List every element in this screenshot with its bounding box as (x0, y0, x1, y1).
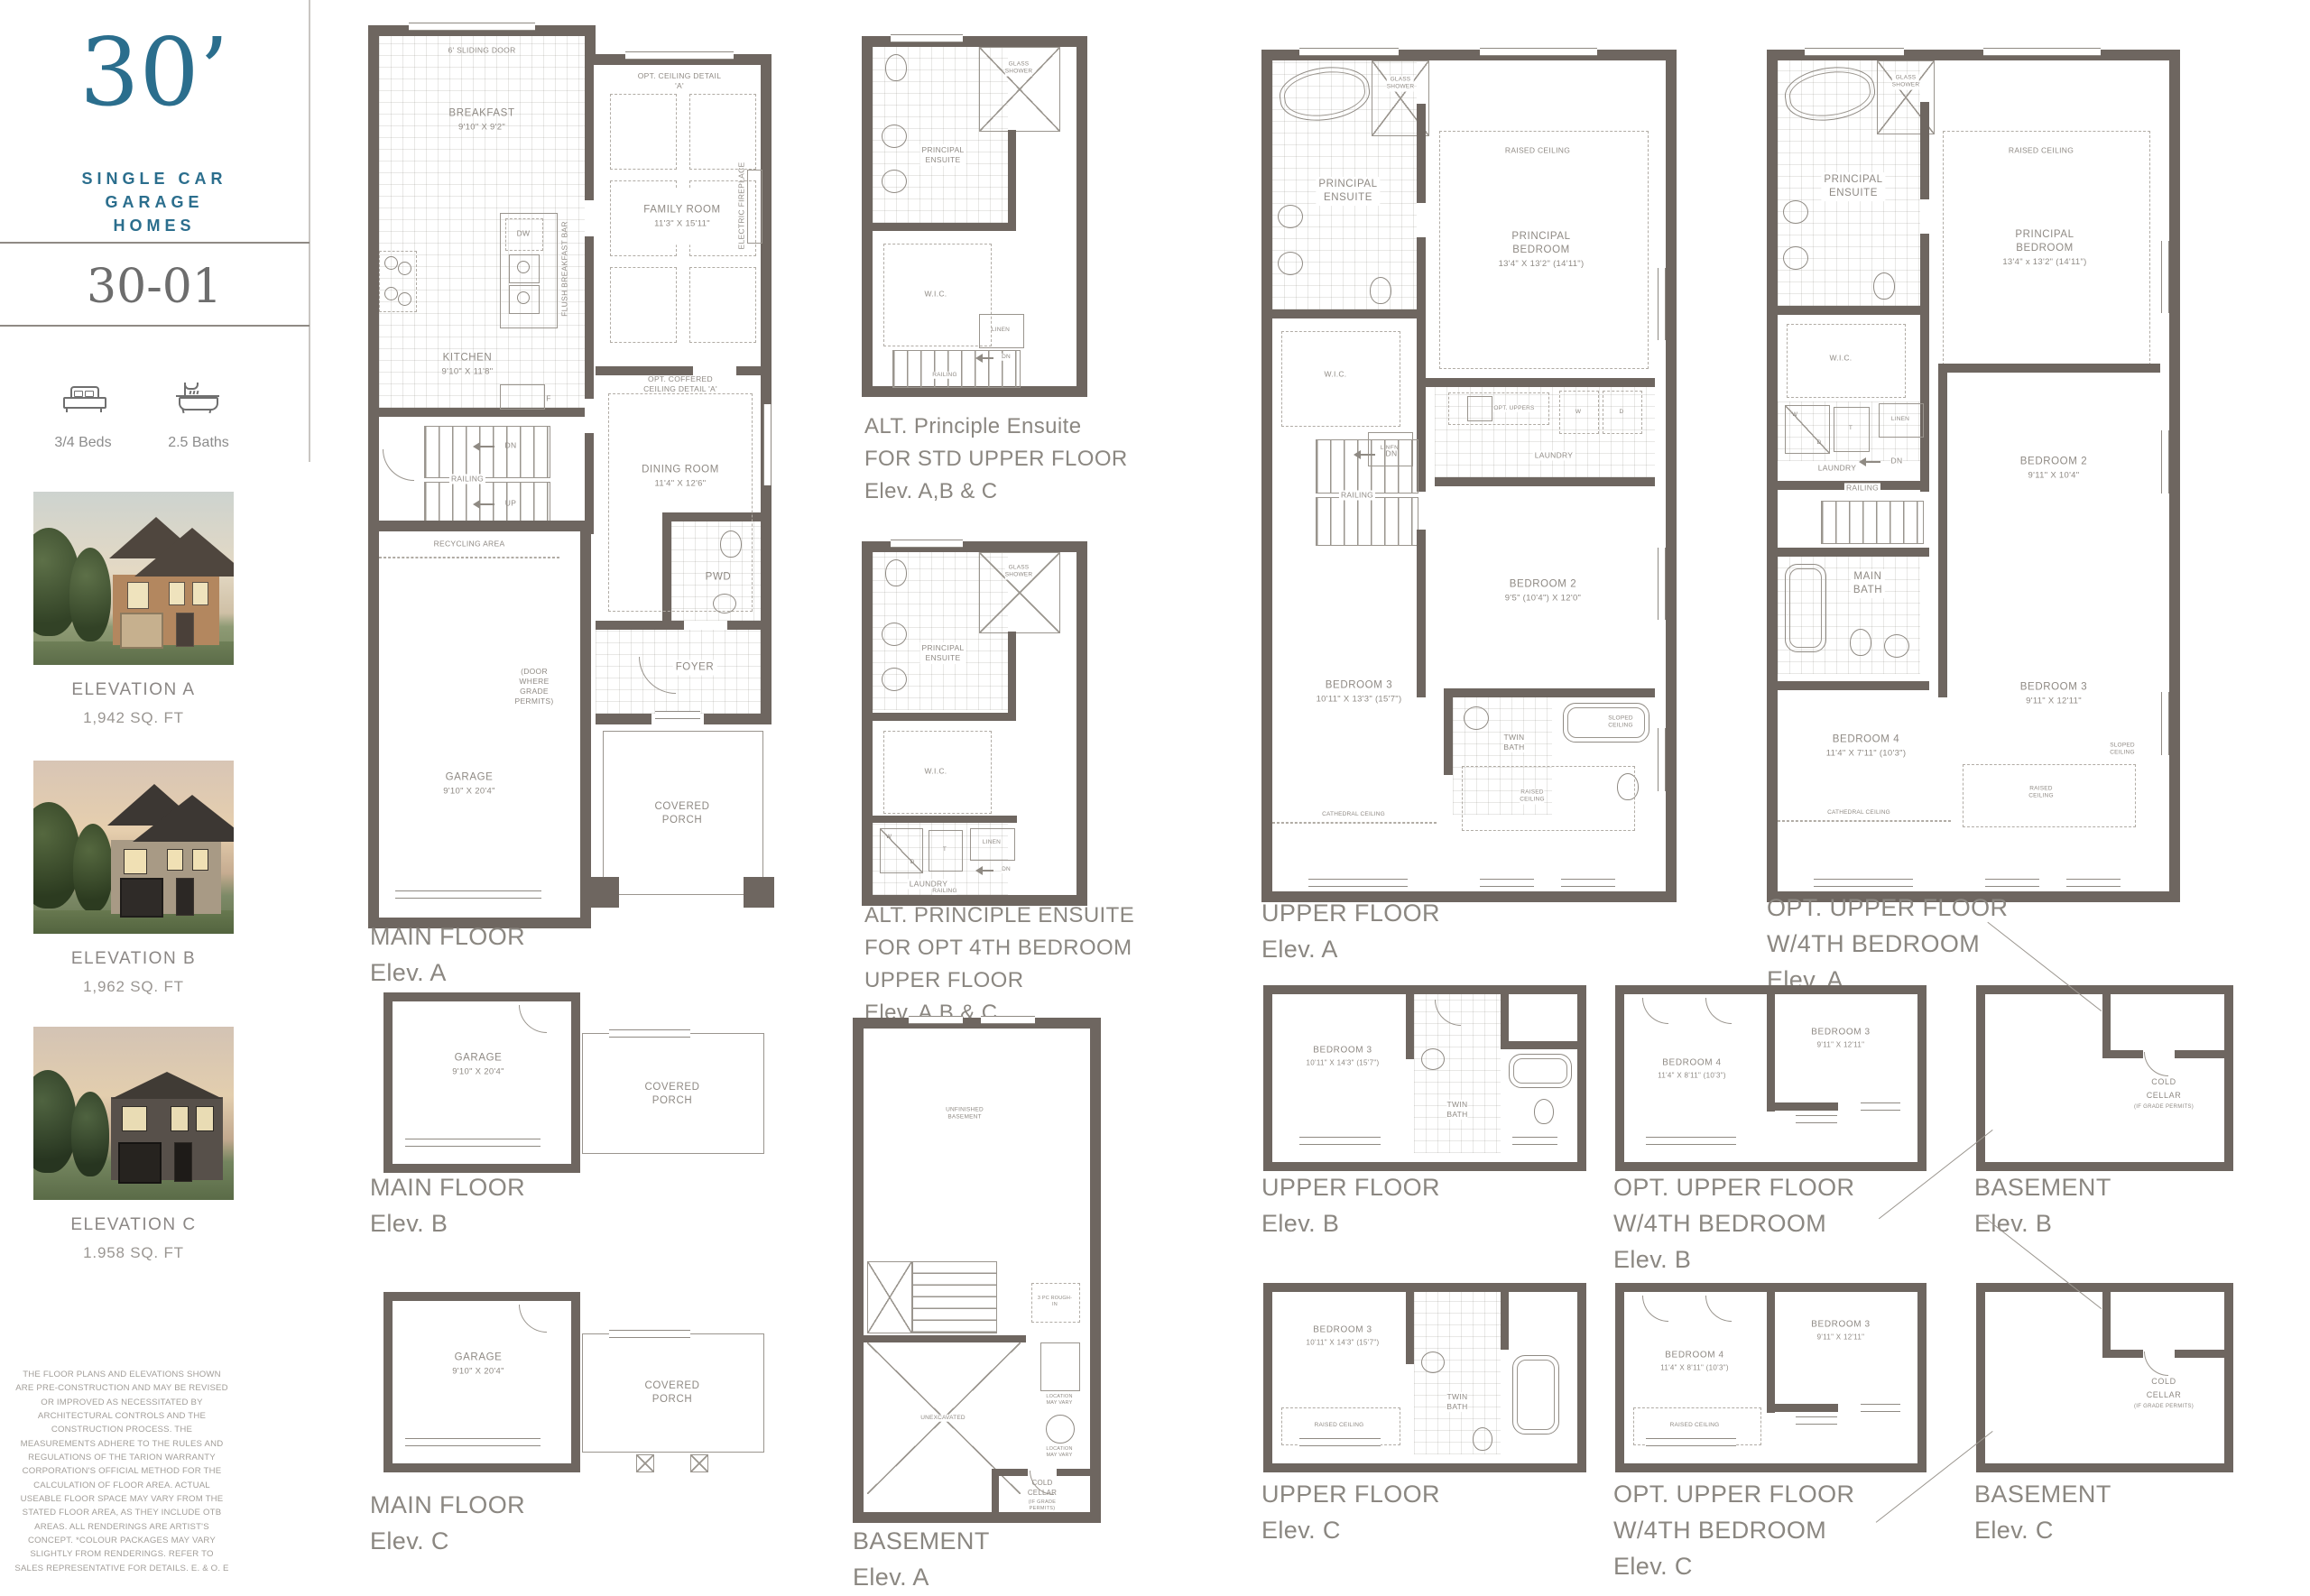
pwd-sink (713, 594, 736, 613)
main-bath-label: MAIN BATH (1851, 569, 1885, 598)
sloped-ceiling-opt-a-label: SLOPED CEILING (2110, 743, 2135, 758)
raised-ceiling-opt-a-label: RAISED CEILING (2009, 145, 2074, 155)
plan-main-a-porch: COVERED PORCH (603, 731, 763, 908)
wic-upper-a-label: W.I.C. (1325, 369, 1347, 379)
caption-basement-c: BASEMENTElev. C (1974, 1480, 2111, 1552)
dn-label: DN (505, 440, 517, 450)
furnace (1040, 1342, 1080, 1391)
twin-bath-c-label: TWIN BATH (1446, 1392, 1467, 1412)
twin-bath-b-label: TWIN BATH (1446, 1100, 1467, 1120)
furnace-note: LOCATION MAY VARY (1046, 1394, 1072, 1407)
d-upper-a: D (1620, 409, 1624, 416)
elevation-a-photo (33, 492, 234, 665)
ensuite-4th-label: PRINCIPAL ENSUITE (920, 642, 966, 664)
rule-above-model (0, 242, 310, 244)
ensuite-opt-a-label: PRINCIPAL ENSUITE (1821, 172, 1885, 201)
cathedral-a-label: CATHEDRAL CEILING (1322, 811, 1385, 818)
plan-main-a-garage: RECYCLING AREA GARAGE9'10" X 20'4" (DOOR… (368, 521, 591, 928)
porch-a-label: COVERED PORCH (654, 800, 709, 827)
opt-uppers-label: OPT. UPPERS (1493, 405, 1534, 412)
plan-main-c-garage: GARAGE9'10" X 20'4" (383, 1292, 580, 1472)
ensuite-std-label: PRINCIPAL ENSUITE (920, 144, 966, 166)
linen-opt-a-label: LINEN (1891, 416, 1909, 423)
raised-ceiling-opt-c-label: RAISED CEILING (1670, 1422, 1720, 1429)
bedroom3-b-label: BEDROOM 310'11" X 14'3" (15'7") (1307, 1029, 1380, 1081)
linen-std-label: LINEN (992, 327, 1010, 334)
glass-shower-opt-a-label: GLASS SHOWER (1892, 75, 1919, 90)
baths-label: 2.5 Baths (144, 435, 253, 451)
dn-std-label: DN (1002, 354, 1011, 361)
cold-cellar-b-label: COLD CELLAR (IF GRADE PERMITS) (2134, 1062, 2194, 1125)
plan-main-b-garage: GARAGE9'10" X 20'4" (383, 992, 580, 1173)
railing-label: RAILING (449, 474, 485, 484)
dn-upper-a-label: DN (1386, 448, 1398, 458)
elevation-c-sqft: 1.958 SQ. FT (16, 1244, 251, 1262)
elevation-c-name: ELEVATION C (16, 1215, 251, 1235)
garage-door-a (395, 890, 541, 899)
sliding-door (409, 23, 535, 31)
front-door (655, 711, 700, 719)
caption-opt-upper-c: OPT. UPPER FLOORW/4TH BEDROOMElev. C (1613, 1480, 1854, 1587)
fireplace-label: ELECTRIC FIREPLACE (736, 161, 746, 249)
railing-4th-label: RAILING (932, 888, 956, 895)
porch-c-label: COVERED PORCH (644, 1379, 699, 1407)
main-bath-tub (1785, 564, 1826, 652)
caption-main-c: MAIN FLOORElev. C (370, 1490, 525, 1563)
stairs-upper-a (1316, 439, 1418, 494)
pwd-label: PWD (706, 571, 732, 585)
garage-door-c (405, 1438, 541, 1446)
bedroom2-a-label: BEDROOM 29'5" (10'4") X 12'0" (1505, 564, 1581, 617)
rule-below-model (0, 325, 310, 327)
bedroom3-opt-c-label: BEDROOM 39'11" X 12'11" (1811, 1304, 1870, 1355)
plan-basement-b: COLD CELLAR (IF GRADE PERMITS) (1976, 985, 2233, 1171)
plan-upper-c: BEDROOM 310'11" X 14'3" (15'7") TWIN BAT… (1263, 1283, 1586, 1472)
kitchen-label: KITCHEN9'10" X 11'8" (442, 337, 494, 391)
laundry-opt-a-label: LAUNDRY (1816, 463, 1859, 473)
caption-alt-std: ALT. Principle EnsuiteFOR STD UPPER FLOO… (864, 413, 1128, 511)
logo-30ft: 30’ (0, 25, 309, 119)
plan-basement-c: COLD CELLAR (IF GRADE PERMITS) (1976, 1283, 2233, 1472)
wic-4th-label: W.I.C. (925, 766, 947, 776)
caption-upper-c: UPPER FLOORElev. C (1261, 1480, 1440, 1552)
plan-main-c-porch: COVERED PORCH (582, 1333, 767, 1469)
railing-std-label: RAILING (932, 372, 956, 379)
d-opt-a: D (1817, 439, 1822, 447)
brochure-page: 30’ SINGLE CAR GARAGE HOMES 30-01 3/4 Be… (0, 0, 2310, 1596)
unfinished-basement-label: UNFINISHED BASEMENT (946, 1107, 984, 1122)
fridge-label: F (546, 393, 551, 403)
porch-b-label: COVERED PORCH (644, 1081, 699, 1108)
garage-c-label: GARAGE9'10" X 20'4" (452, 1337, 504, 1390)
bedroom3-opt-b-label: BEDROOM 39'11" X 12'11" (1811, 1011, 1870, 1063)
glass-shower-std (979, 47, 1060, 132)
bedroom3-a-label: BEDROOM 310'11" X 13'3" (15'7") (1317, 665, 1402, 718)
plan-main-b-porch: COVERED PORCH (582, 1033, 767, 1159)
plan-opt-upper-c: BEDROOM 411'4" X 8'11" (10'3") BEDROOM 3… (1615, 1283, 1927, 1472)
dn-opt-a-label: DN (1891, 456, 1903, 466)
elevation-a-name: ELEVATION A (16, 680, 251, 700)
caption-alt-4th: ALT. PRINCIPLE ENSUITEFOR OPT 4TH BEDROO… (864, 902, 1134, 1032)
caption-upper-b: UPPER FLOORElev. B (1261, 1173, 1440, 1245)
wic-opt-a-label: W.I.C. (1830, 353, 1853, 363)
bedroom4-c-label: BEDROOM 411'4" X 8'11" (10'3") (1660, 1334, 1729, 1386)
ensuite-upper-a-label: PRINCIPAL ENSUITE (1316, 177, 1380, 206)
glass-shower-4th-label: GLASS SHOWER (1005, 565, 1032, 580)
twin-bath-a-label: TWIN BATH (1503, 733, 1524, 752)
stairs-basement-a (912, 1261, 997, 1333)
bath-icon (179, 383, 218, 413)
cold-cellar-c-label: COLD CELLAR (IF GRADE PERMITS) (2134, 1361, 2194, 1425)
garage-a-label: GARAGE9'10" X 20'4" (443, 757, 495, 810)
bedroom3-c-label: BEDROOM 310'11" X 14'3" (15'7") (1307, 1309, 1380, 1361)
bedroom4-b-label: BEDROOM 411'4" X 8'11" (10'3") (1658, 1042, 1726, 1093)
breakfast-label: BREAKFAST9'10" X 9'2" (448, 93, 514, 146)
dw-label: DW (517, 228, 531, 238)
bedroom2-opt-a-label: BEDROOM 29'11" X 10'4" (2020, 441, 2087, 494)
plan-opt-upper-b: BEDROOM 411'4" X 8'11" (10'3") BEDROOM 3… (1615, 985, 1927, 1171)
garage-door-b (405, 1139, 541, 1147)
cold-cellar-a-label: COLD CELLAR (IF GRADE PERMITS) (1019, 1471, 1067, 1520)
caption-upper-a: UPPER FLOORElev. A (1261, 899, 1440, 971)
flush-bar-label: FLUSH BREAKFAST BAR (559, 221, 569, 317)
plan-upper-b: BEDROOM 310'11" X 14'3" (15'7") TWIN BAT… (1263, 985, 1586, 1171)
raised-ceiling2-a-label: RAISED CEILING (1520, 789, 1544, 805)
up-label: UP (505, 498, 516, 508)
beds-label: 3/4 Beds (29, 435, 137, 451)
w-upper-a: W (1575, 409, 1581, 416)
laundry-upper-a-label: LAUNDRY (1533, 450, 1575, 460)
logo-subtitle: SINGLE CAR GARAGE HOMES (0, 167, 309, 237)
plan-alt-ensuite-4th: GLASS SHOWER PRINCIPAL ENSUITE W.I.C. W … (862, 541, 1087, 906)
dn-4th-label: DN (1002, 866, 1011, 873)
caption-opt-upper-b: OPT. UPPER FLOORW/4TH BEDROOMElev. B (1613, 1173, 1854, 1280)
hwt-note: LOCATION MAY VARY (1046, 1446, 1072, 1459)
plan-alt-ensuite-std: GLASS SHOWER PRINCIPAL ENSUITE W.I.C. LI… (862, 36, 1087, 397)
raised-ceiling2-opt-a-label: RAISED CEILING (2028, 786, 2053, 801)
foyer-label: FOYER (673, 660, 717, 676)
fireplace (747, 170, 762, 244)
door-grade-note: (DOOR WHERE GRADE PERMITS) (514, 667, 553, 706)
caption-basement-b: BASEMENTElev. B (1974, 1173, 2111, 1245)
elevation-b-sqft: 1,962 SQ. FT (16, 978, 251, 996)
sidebar-divider (309, 0, 310, 462)
glass-shower-std-label: GLASS SHOWER (1005, 61, 1032, 77)
model-number: 30-01 (0, 260, 309, 314)
disclaimer-text: THE FLOOR PLANS AND ELEVATIONS SHOWN ARE… (14, 1368, 229, 1575)
twin-tub-b (1509, 1054, 1572, 1088)
elevation-b-photo (33, 761, 234, 934)
bedroom3-opt-a-label: BEDROOM 39'11" X 12'11" (2020, 667, 2087, 720)
bed-icon (63, 386, 103, 413)
rough-in-label: 3 PC ROUGH-IN (1038, 1296, 1073, 1308)
elevation-c-photo (33, 1027, 234, 1200)
t-opt-a: T (1849, 425, 1853, 432)
principal-bedroom-a-label: PRINCIPAL BEDROOM13'4" X 13'2" (14'11") (1479, 216, 1603, 284)
dining-room-label: DINING ROOM11'4" X 12'6" (642, 449, 719, 503)
family-room-label: FAMILY ROOM11'3" X 15'11" (640, 188, 724, 244)
w-opt-a: W (1792, 411, 1797, 419)
plan-basement-a: UNFINISHED BASEMENT UNEXCAVATED 3 PC ROU… (853, 1018, 1101, 1523)
railing-opt-a-label: RAILING (1844, 483, 1880, 493)
caption-main-a: MAIN FLOORElev. A (370, 922, 525, 994)
recycling-label: RECYCLING AREA (434, 539, 505, 549)
sidebar: 30’ SINGLE CAR GARAGE HOMES 30-01 3/4 Be… (0, 0, 310, 1596)
cathedral-opt-a-label: CATHEDRAL CEILING (1827, 809, 1890, 816)
caption-basement-a: BASEMENTElev. A (853, 1527, 990, 1596)
wic-std-label: W.I.C. (925, 289, 947, 299)
sloped-ceiling-a-label: SLOPED CEILING (1608, 715, 1633, 731)
bedroom4-opt-a-label: BEDROOM 411'4" X 7'11" (10'3") (1826, 719, 1907, 772)
raised-ceiling-a-label: RAISED CEILING (1505, 145, 1570, 155)
opt-coffered-label: OPT. COFFERED CEILING DETAIL 'A' (635, 374, 726, 394)
elevation-a-sqft: 1,942 SQ. FT (16, 709, 251, 727)
unexcavated-label: UNEXCAVATED (920, 1415, 966, 1422)
pwd-toilet (720, 530, 742, 558)
plan-opt-upper-a: GLASS SHOWER PRINCIPAL ENSUITE RAISED CE… (1767, 50, 2180, 902)
hwt (1046, 1415, 1075, 1444)
twin-tub-c (1512, 1355, 1559, 1435)
railing-upper-a-label: RAILING (1339, 490, 1375, 500)
garage-b-label: GARAGE9'10" X 20'4" (452, 1038, 504, 1091)
raised-ceiling-c-label: RAISED CEILING (1315, 1422, 1364, 1429)
sliding-door-label: 6' SLIDING DOOR (448, 45, 515, 55)
plan-upper-a: GLASS SHOWER PRINCIPAL ENSUITE RAISED CE… (1261, 50, 1677, 902)
twin-bath-tub-a (1563, 703, 1649, 743)
opt-ceiling-label: OPT. CEILING DETAIL 'A' (633, 71, 725, 91)
elevation-b-name: ELEVATION B (16, 949, 251, 969)
caption-main-b: MAIN FLOORElev. B (370, 1173, 525, 1245)
principal-bedroom-opt-a-label: PRINCIPAL BEDROOM13'4" x 13'2" (14'11") (1982, 214, 2107, 282)
stairs-main (424, 426, 550, 478)
glass-shower-upper-a-label: GLASS SHOWER (1387, 77, 1414, 92)
